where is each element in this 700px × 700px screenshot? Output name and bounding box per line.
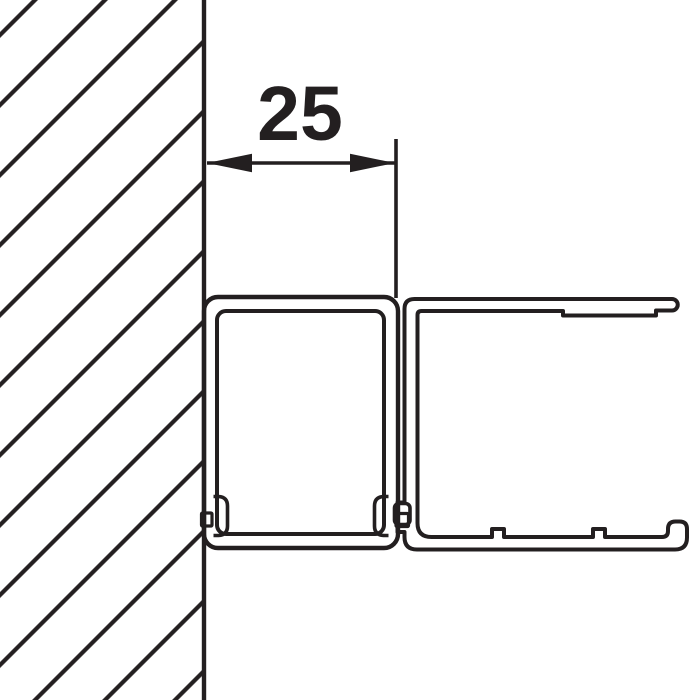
dimension-annotation: 25: [207, 71, 396, 298]
arrowhead-right-icon: [350, 154, 395, 172]
technical-drawing-canvas: 25: [0, 0, 700, 700]
tube-outer-contour: [204, 297, 398, 548]
panel-profile-outline: [398, 299, 688, 550]
wall-square-tube-profile: [202, 297, 399, 548]
dimension-label: 25: [257, 71, 343, 157]
panel-channel-profile: [398, 299, 688, 550]
drawing-page: 25: [0, 0, 700, 700]
arrowhead-left-icon: [207, 154, 252, 172]
tube-left-clip-groove: [202, 513, 213, 526]
tube-inner-contour: [217, 311, 384, 534]
wall-hatching: [0, 0, 204, 700]
